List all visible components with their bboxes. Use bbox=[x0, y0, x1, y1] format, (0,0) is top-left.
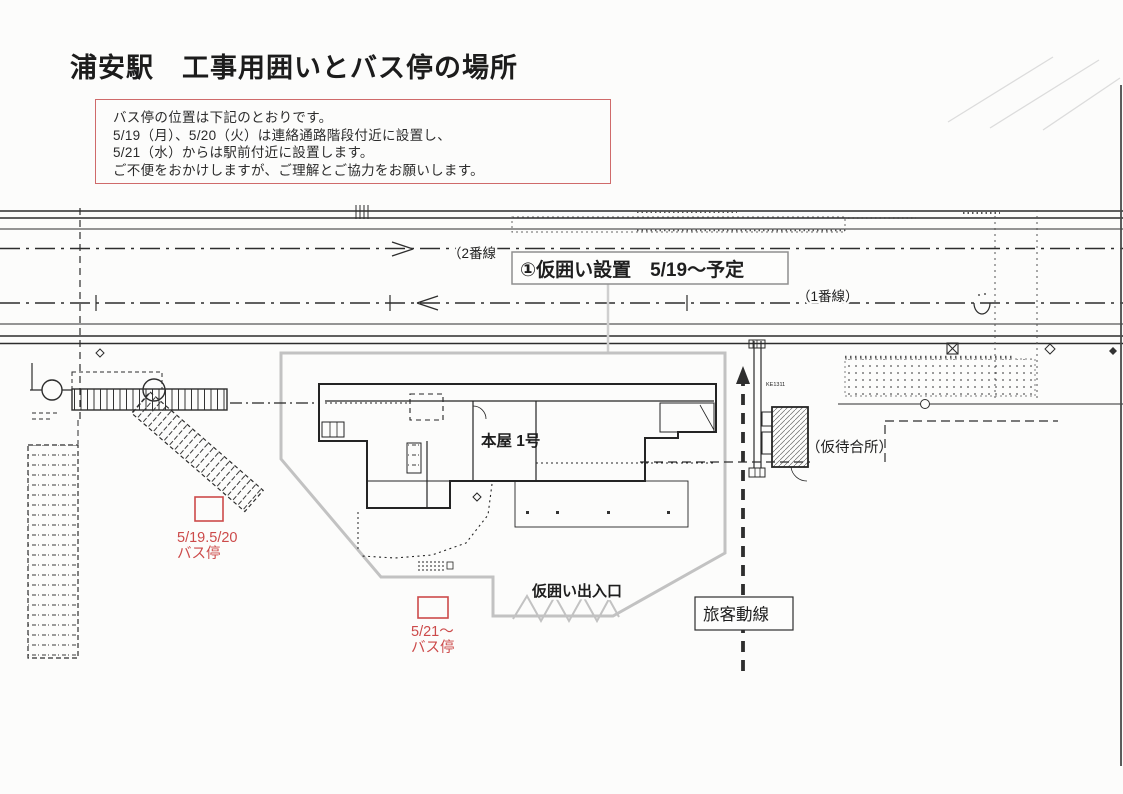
bus-stop-late: 5/21～ バス停 bbox=[411, 597, 455, 656]
waiting-area-label: （仮待合所） bbox=[806, 439, 893, 456]
survey-dot bbox=[667, 511, 670, 514]
survey-dot bbox=[526, 511, 529, 514]
temporary-fence bbox=[281, 284, 725, 621]
signal-symbol bbox=[974, 303, 990, 314]
station-building bbox=[230, 384, 716, 570]
track1-label: （1番線） bbox=[797, 289, 859, 304]
side-structure-ladder bbox=[28, 445, 78, 658]
waiting-room-door-arc bbox=[791, 467, 807, 481]
bus-stop-early-dates: 5/19.5/20 bbox=[177, 530, 237, 546]
dotted-paved-rect bbox=[845, 359, 1035, 396]
scan-streak bbox=[948, 57, 1053, 122]
fence-outline bbox=[281, 353, 725, 616]
bus-stop-late-box bbox=[418, 597, 448, 618]
scan-streak bbox=[1043, 78, 1120, 130]
bus-stop-late-dates: 5/21～ bbox=[411, 624, 454, 640]
bus-stop-early: 5/19.5/20 バス停 bbox=[177, 497, 237, 562]
scanned-notice-page: 浦安駅 工事用囲いとバス停の場所 バス停の位置は下記のとおりです。 5/19（月… bbox=[0, 0, 1123, 794]
survey-dot bbox=[556, 511, 559, 514]
passenger-flow-label: 旅客動線 bbox=[703, 605, 769, 624]
passenger-flow-arrow bbox=[736, 366, 750, 384]
scan-streak bbox=[990, 60, 1099, 128]
callout-label: ①仮囲い設置 5/19～予定 bbox=[520, 258, 744, 281]
diamond-symbol bbox=[1045, 344, 1055, 354]
boxed-x-symbol bbox=[947, 343, 958, 354]
small-diamond bbox=[473, 493, 481, 501]
paved-area bbox=[838, 343, 1123, 409]
crossing-ticks bbox=[356, 205, 368, 219]
building-label: 本屋 1号 bbox=[481, 431, 540, 450]
equipment-code-label: KE1311 bbox=[766, 382, 785, 388]
forecourt-outline bbox=[515, 481, 688, 527]
waiting-room-annex bbox=[762, 432, 772, 454]
manhole-circle bbox=[921, 400, 930, 409]
waiting-room-outline bbox=[772, 407, 808, 467]
building-dashed-room bbox=[410, 394, 443, 420]
fence-gate-label: 仮囲い出入口 bbox=[531, 582, 622, 600]
overpass-pier bbox=[749, 340, 765, 477]
building-corner-room bbox=[322, 422, 344, 437]
pier-cap bbox=[749, 468, 765, 477]
bus-stop-early-label: バス停 bbox=[177, 545, 221, 562]
temporary-waiting-room bbox=[762, 407, 808, 481]
track2-label: （2番線 bbox=[448, 246, 497, 261]
fence-callout: ①仮囲い設置 5/19～予定 bbox=[512, 252, 788, 284]
interior-stair bbox=[407, 443, 421, 473]
signal-dot bbox=[978, 294, 980, 296]
signal-dot bbox=[984, 293, 986, 295]
door-swing-arc bbox=[473, 406, 486, 419]
pier-column-circle bbox=[42, 380, 62, 400]
small-marker-box bbox=[447, 562, 453, 569]
site-plan-drawing: （2番線 （1番線） bbox=[0, 0, 1123, 794]
survey-dot bbox=[607, 511, 610, 514]
waiting-room-annex bbox=[762, 412, 772, 426]
small-diamond bbox=[96, 349, 104, 357]
footbridge-stairs bbox=[28, 349, 263, 658]
scan-artifacts bbox=[948, 57, 1121, 766]
stair-diagonal bbox=[700, 405, 714, 430]
bus-stop-early-box bbox=[195, 497, 223, 521]
bus-stop-late-label: バス停 bbox=[411, 639, 455, 656]
dotted-detail-cluster bbox=[418, 562, 446, 570]
diamond-symbol-small bbox=[1109, 347, 1117, 355]
building-right-room bbox=[660, 403, 714, 432]
